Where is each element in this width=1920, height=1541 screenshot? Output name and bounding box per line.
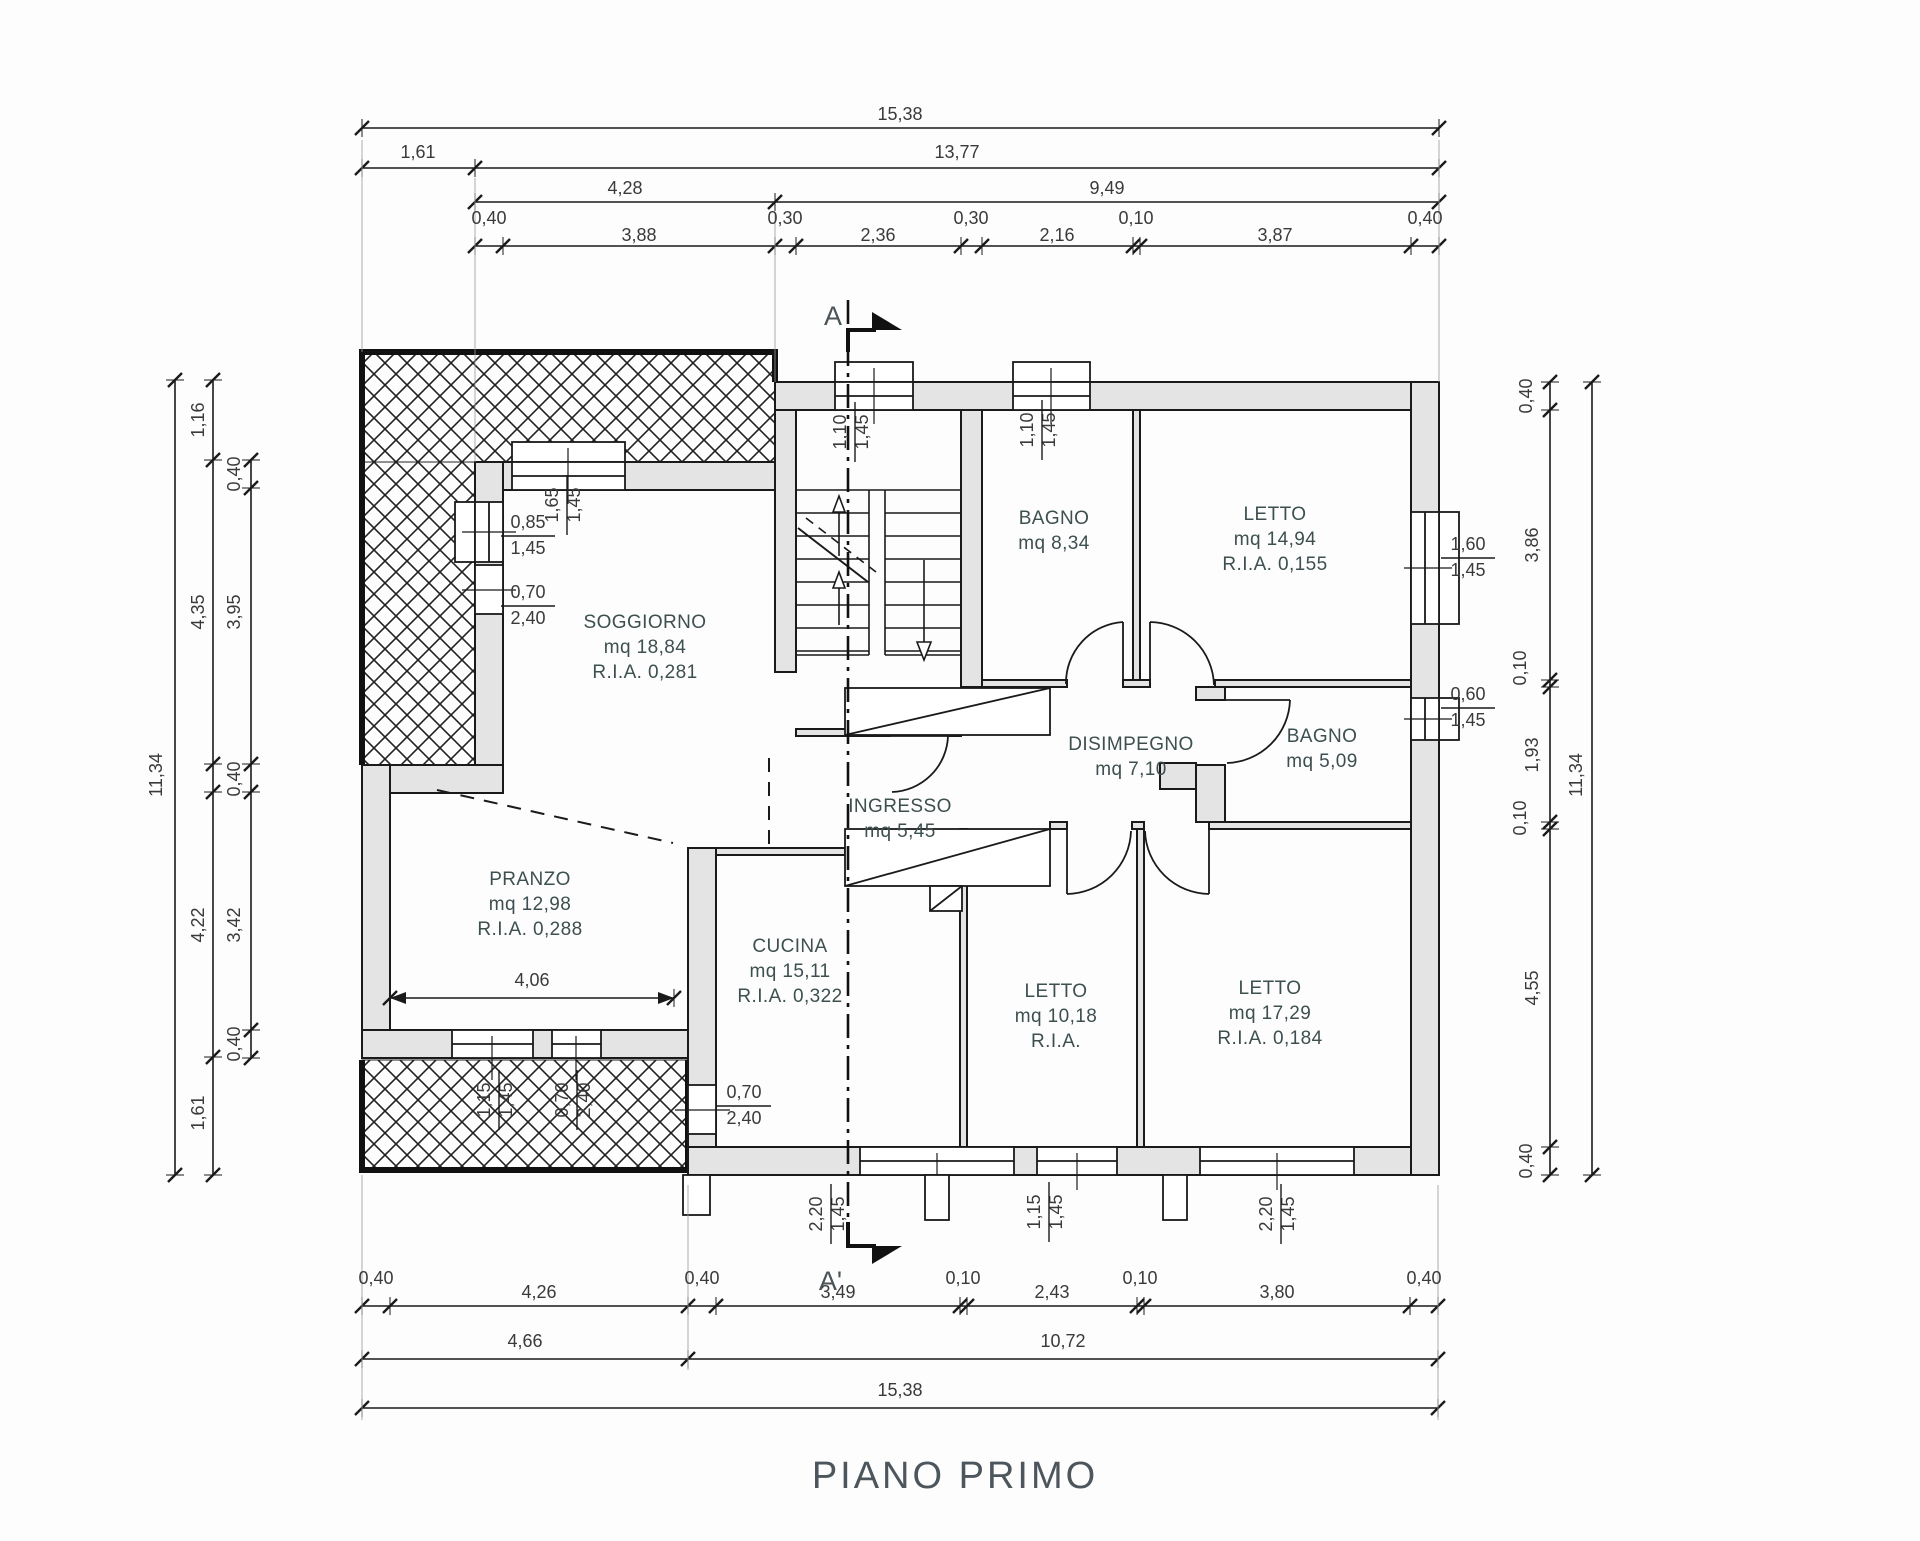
room-label: BAGNO — [1019, 508, 1090, 529]
room-label: R.I.A. 0,184 — [1217, 1028, 1322, 1049]
floor-plan-drawing: 15,381,6113,774,289,490,403,880,302,360,… — [0, 0, 1920, 1541]
dim-label: 0,40 — [1516, 1143, 1536, 1178]
dim-label: 0,70 — [552, 1082, 572, 1117]
dim-label: 1,10 — [1017, 412, 1037, 447]
dim-label: 0,40 — [684, 1268, 719, 1288]
room-label: R.I.A. 0,281 — [592, 662, 697, 683]
section-arrow-top — [872, 312, 902, 330]
dim-label: 0,30 — [953, 208, 988, 228]
door-arc-letto2 — [1067, 831, 1131, 894]
dim-label: 1,61 — [188, 1095, 208, 1130]
dim-label: 1,93 — [1522, 737, 1542, 772]
dim-label: 15,38 — [877, 104, 922, 124]
wall-corridor-south-1 — [1050, 822, 1067, 829]
dim-label: 4,22 — [188, 907, 208, 942]
room-label: R.I.A. 0,288 — [477, 919, 582, 940]
wall-bagno1-letto1 — [1133, 410, 1140, 680]
room-label: R.I.A. 0,322 — [737, 986, 842, 1007]
terrace-hatch-top-left — [362, 352, 775, 765]
dim-label: 1,45 — [510, 538, 545, 558]
dim-label: 0,40 — [471, 208, 506, 228]
dim-label: 4,55 — [1522, 970, 1542, 1005]
dim-label: 0,10 — [1510, 800, 1530, 835]
stairs — [796, 490, 961, 660]
balcony-hatch-bottom-left — [362, 1060, 688, 1170]
wall-corridor-north-2 — [1123, 680, 1150, 687]
wall-right-outer — [1411, 382, 1439, 1175]
room-label: DISIMPEGNO — [1068, 734, 1193, 755]
room-label: LETTO — [1025, 981, 1088, 1002]
dim-label: 0,10 — [1122, 1268, 1157, 1288]
room-label: SOGGIORNO — [584, 612, 707, 633]
wall-left-pranzo — [362, 765, 390, 1058]
dim-label: 0,60 — [1450, 684, 1485, 704]
dim-label: 15,38 — [877, 1380, 922, 1400]
dim-label: 3,95 — [224, 594, 244, 629]
section-label-bottom: A' — [819, 1266, 842, 1296]
section-arrow-bottom — [872, 1246, 902, 1264]
dim-label: 3,86 — [1522, 527, 1542, 562]
dim-label: 2,20 — [1256, 1196, 1276, 1231]
dim-label: 1,15 — [1024, 1194, 1044, 1229]
dim-label: 2,16 — [1039, 225, 1074, 245]
room-label: mq 15,11 — [749, 961, 830, 982]
dim-label: 0,40 — [224, 1026, 244, 1061]
door-arc-bagno2 — [1227, 700, 1290, 763]
wall-corridor-north-1 — [982, 680, 1067, 687]
dim-label: 2,20 — [806, 1196, 826, 1231]
dim-label: 4,35 — [188, 594, 208, 629]
exterior-step — [1163, 1175, 1187, 1220]
dim-label: 0,40 — [224, 761, 244, 796]
stair-break-line-dashed — [806, 518, 876, 572]
dim-label: 1,60 — [1450, 534, 1485, 554]
wall-bagno2-west-top — [1196, 687, 1225, 700]
dim-label: 2,43 — [1034, 1282, 1069, 1302]
dim-label: 3,42 — [224, 907, 244, 942]
exterior-step — [925, 1175, 949, 1220]
room-label: R.I.A. — [1031, 1031, 1081, 1052]
dim-label: 0,85 — [510, 512, 545, 532]
dim-label: 0,10 — [1118, 208, 1153, 228]
room-label: PRANZO — [489, 869, 571, 890]
room-label: mq 5,09 — [1286, 751, 1357, 772]
dim-label: 10,72 — [1040, 1331, 1085, 1351]
room-label: mq 5,45 — [864, 821, 935, 842]
wall-stair-right — [961, 410, 982, 687]
wall-bagno2-west-bottom — [1196, 765, 1225, 822]
dim-label: 0,70 — [510, 582, 545, 602]
dim-label: 11,34 — [1566, 753, 1586, 797]
stair-up-arrow — [833, 496, 845, 512]
room-label: R.I.A. 0,155 — [1222, 554, 1327, 575]
dim-label: 0,30 — [767, 208, 802, 228]
wall-ingresso-south — [716, 848, 845, 855]
dim-label: 1,45 — [1450, 710, 1485, 730]
section-label-top: A — [824, 301, 842, 331]
dim-label: 0,40 — [1407, 208, 1442, 228]
wall-letto2-letto3 — [1137, 829, 1144, 1147]
dim-label: 2,40 — [510, 608, 545, 628]
room-label: BAGNO — [1287, 726, 1358, 747]
plan-title: PIANO PRIMO — [812, 1455, 1098, 1497]
room-label: LETTO — [1244, 504, 1307, 525]
dim-label: 1,16 — [188, 402, 208, 437]
exterior-step — [683, 1175, 710, 1215]
room-label: mq 12,98 — [489, 894, 571, 915]
dim-label: 3,88 — [621, 225, 656, 245]
dim-label: 1,15 — [474, 1082, 494, 1117]
dim-label: 4,26 — [521, 1282, 556, 1302]
room-label: CUCINA — [752, 936, 827, 957]
room-label: mq 8,34 — [1018, 533, 1089, 554]
dim-label: 0,70 — [726, 1082, 761, 1102]
dim-label: 1,61 — [400, 142, 435, 162]
dim-label: 1,10 — [830, 414, 850, 449]
dim-label: 11,34 — [146, 753, 166, 797]
door-arc-bagno1 — [1066, 622, 1123, 684]
room-label: INGRESSO — [848, 796, 952, 817]
door-arc-ingresso — [892, 736, 948, 792]
dim-label: 13,77 — [934, 142, 979, 162]
dim-label: 0,40 — [1516, 378, 1536, 413]
wall-corridor-south-3 — [1209, 822, 1411, 829]
room-label: mq 17,29 — [1229, 1003, 1311, 1024]
floor-plan-page: 15,381,6113,774,289,490,403,880,302,360,… — [0, 0, 1920, 1541]
room-label: mq 18,84 — [604, 637, 686, 658]
dim-label: 9,49 — [1089, 178, 1124, 198]
wall-corridor-north-3 — [1215, 680, 1411, 687]
wall-stair-left — [775, 410, 796, 672]
dim-label: 0,10 — [1510, 650, 1530, 685]
wall-bottom-pranzo — [362, 1030, 716, 1058]
dim-label: 4,28 — [607, 178, 642, 198]
door-arc-letto3 — [1145, 831, 1209, 894]
dim-label: 3,87 — [1257, 225, 1292, 245]
stair-up-arrow — [833, 572, 845, 588]
room-label: mq 10,18 — [1015, 1006, 1097, 1027]
room-label: LETTO — [1239, 978, 1302, 999]
wall-corridor-south-2 — [1132, 822, 1144, 829]
dim-label: 1,45 — [1450, 560, 1485, 580]
door-arc-letto1 — [1150, 622, 1214, 685]
dim-label: 0,40 — [358, 1268, 393, 1288]
dim-label: 2,40 — [726, 1108, 761, 1128]
room-label: mq 14,94 — [1234, 529, 1316, 550]
dim-label: 4,06 — [514, 970, 549, 990]
dim-label: 0,40 — [1406, 1268, 1441, 1288]
dim-label: 3,80 — [1259, 1282, 1294, 1302]
dim-label: 0,10 — [945, 1268, 980, 1288]
room-label: mq 7,10 — [1095, 759, 1166, 780]
dim-label: 0,40 — [224, 456, 244, 491]
dim-label: 4,66 — [507, 1331, 542, 1351]
dim-label: 2,36 — [860, 225, 895, 245]
